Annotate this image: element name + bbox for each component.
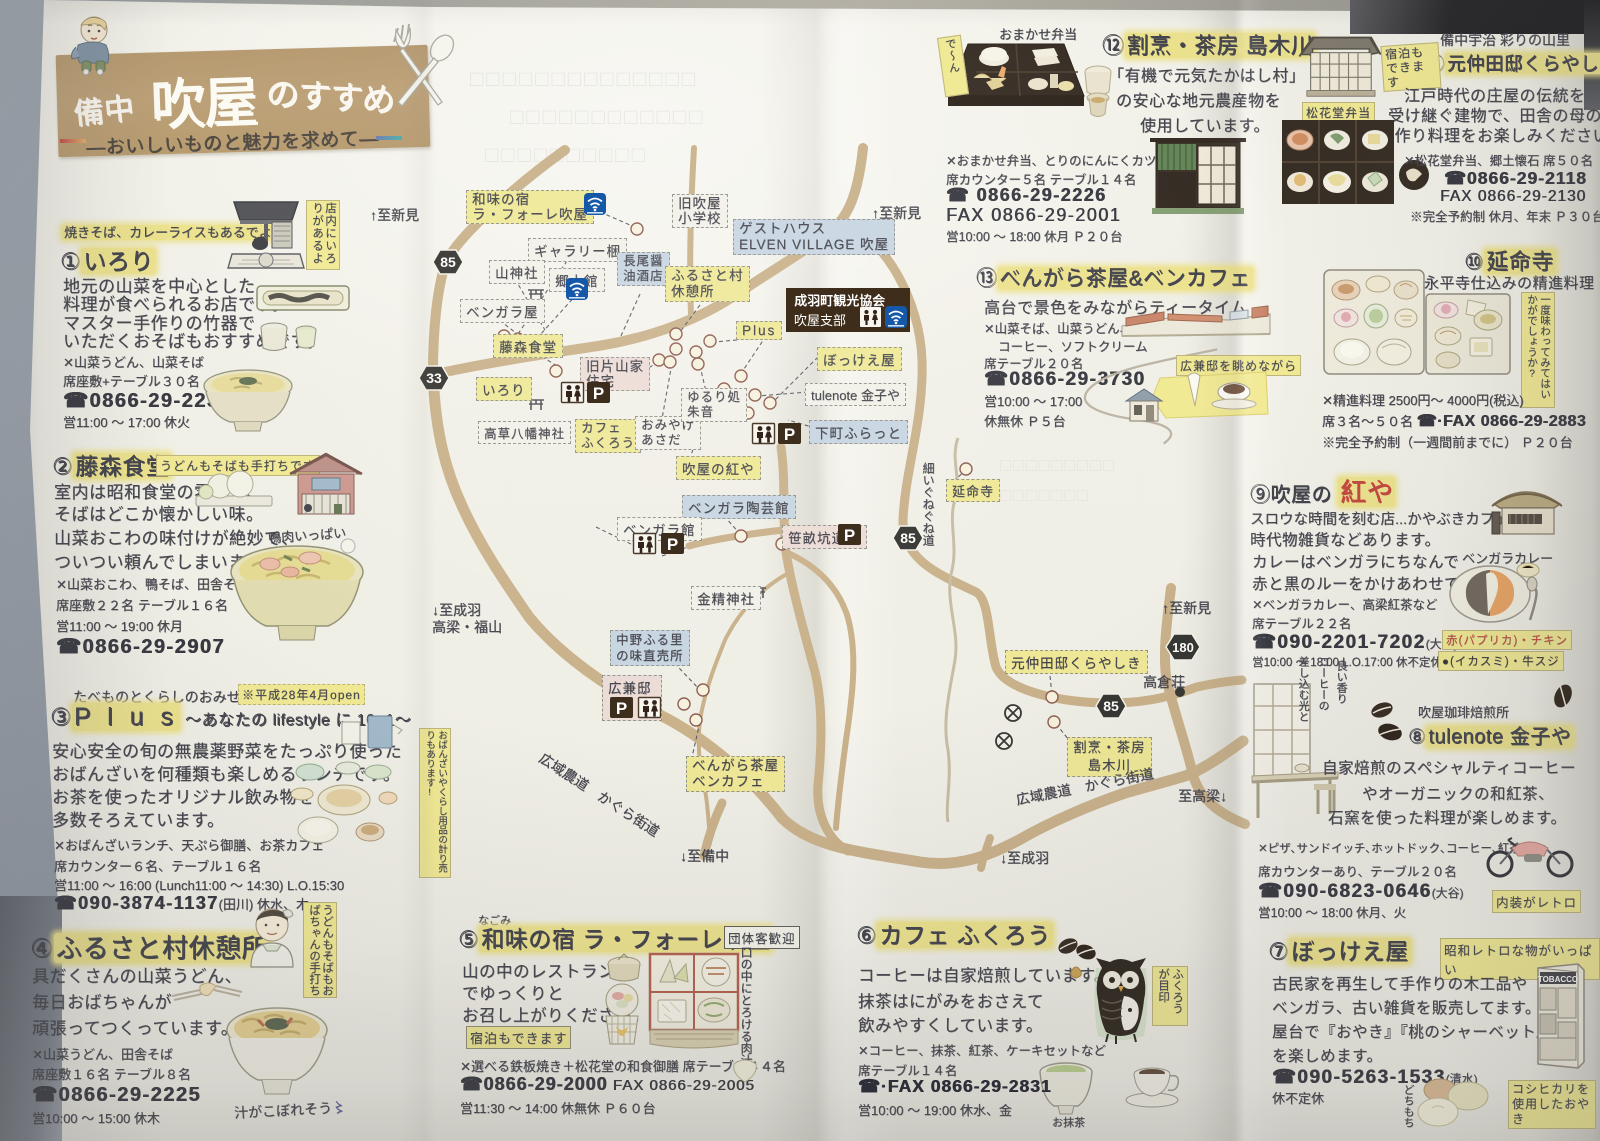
svg-text:吹屋支部: 吹屋支部 (794, 313, 846, 328)
svg-text:成羽町観光協会: 成羽町観光協会 (794, 293, 885, 308)
